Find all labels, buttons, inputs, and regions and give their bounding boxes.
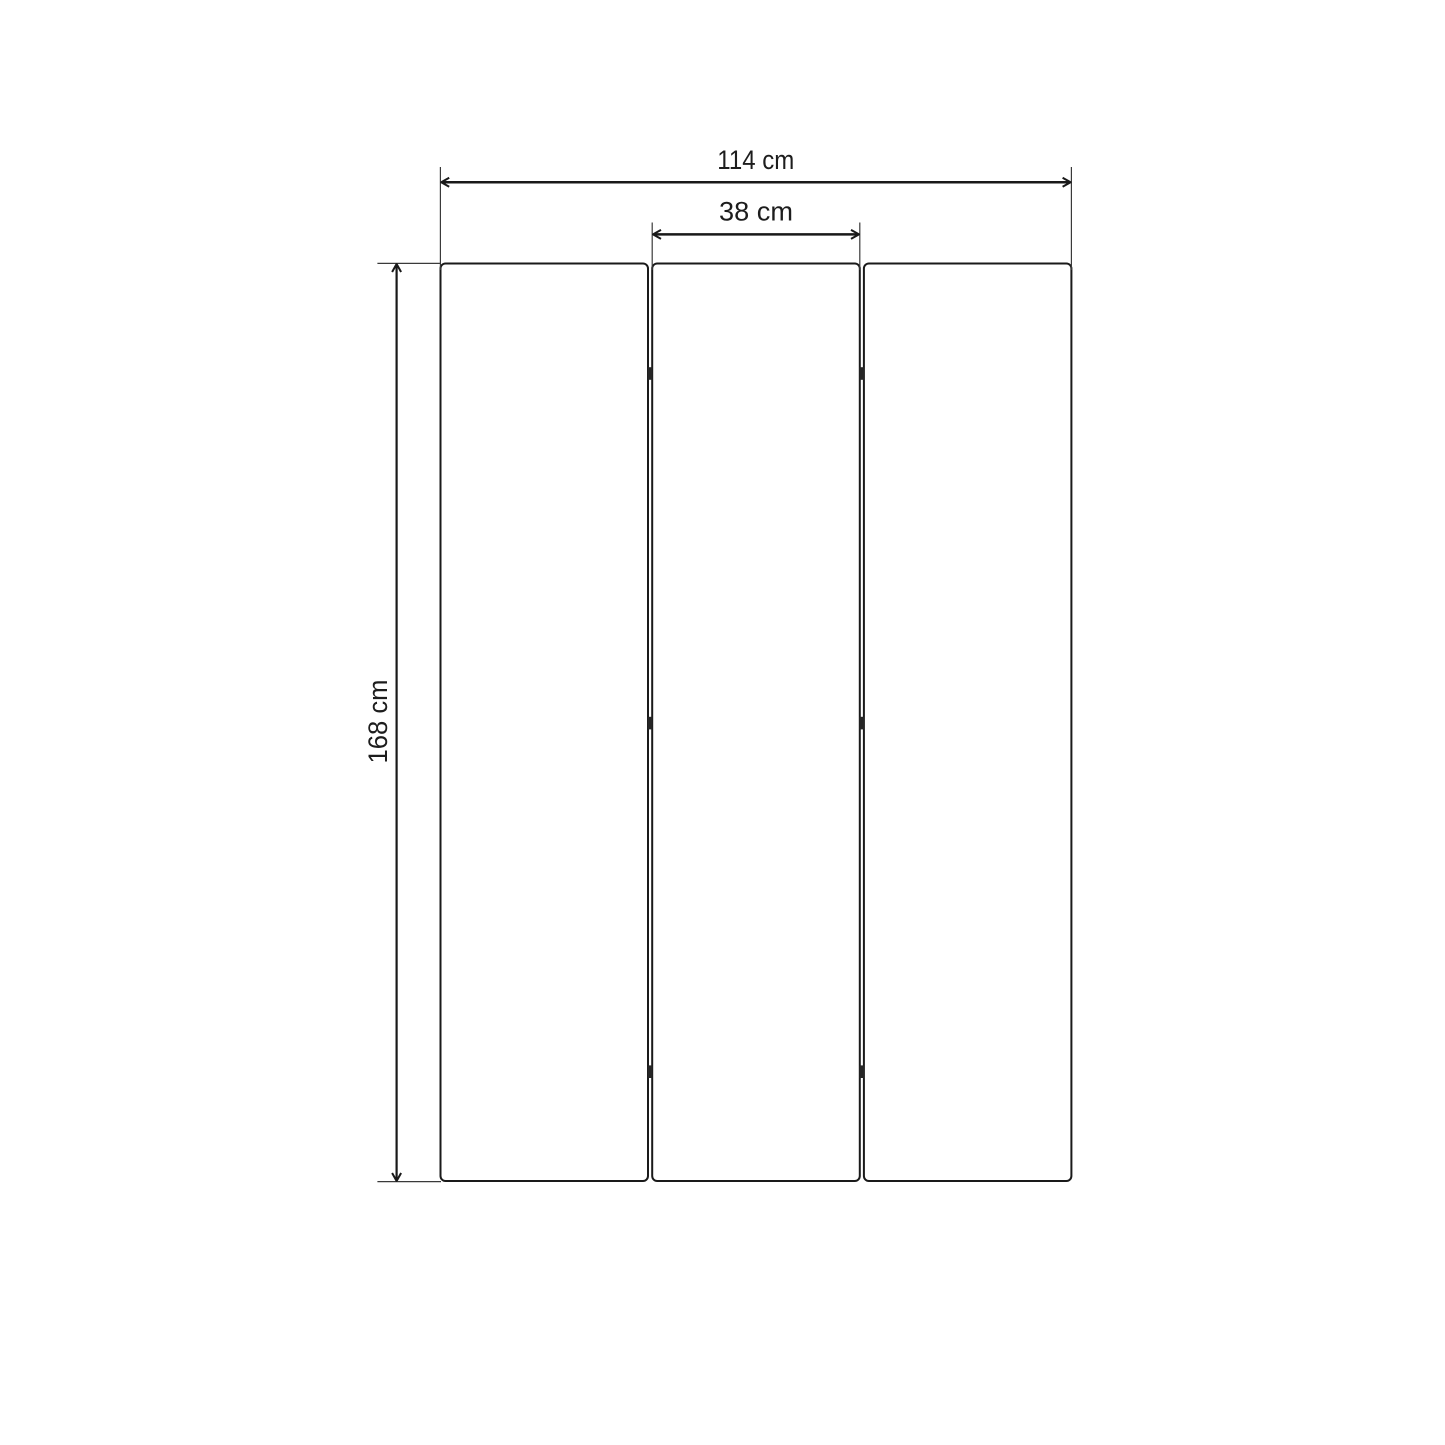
svg-text:38 cm: 38 cm	[719, 197, 793, 227]
svg-text:168 cm: 168 cm	[363, 680, 393, 764]
svg-text:114 cm: 114 cm	[717, 145, 794, 175]
